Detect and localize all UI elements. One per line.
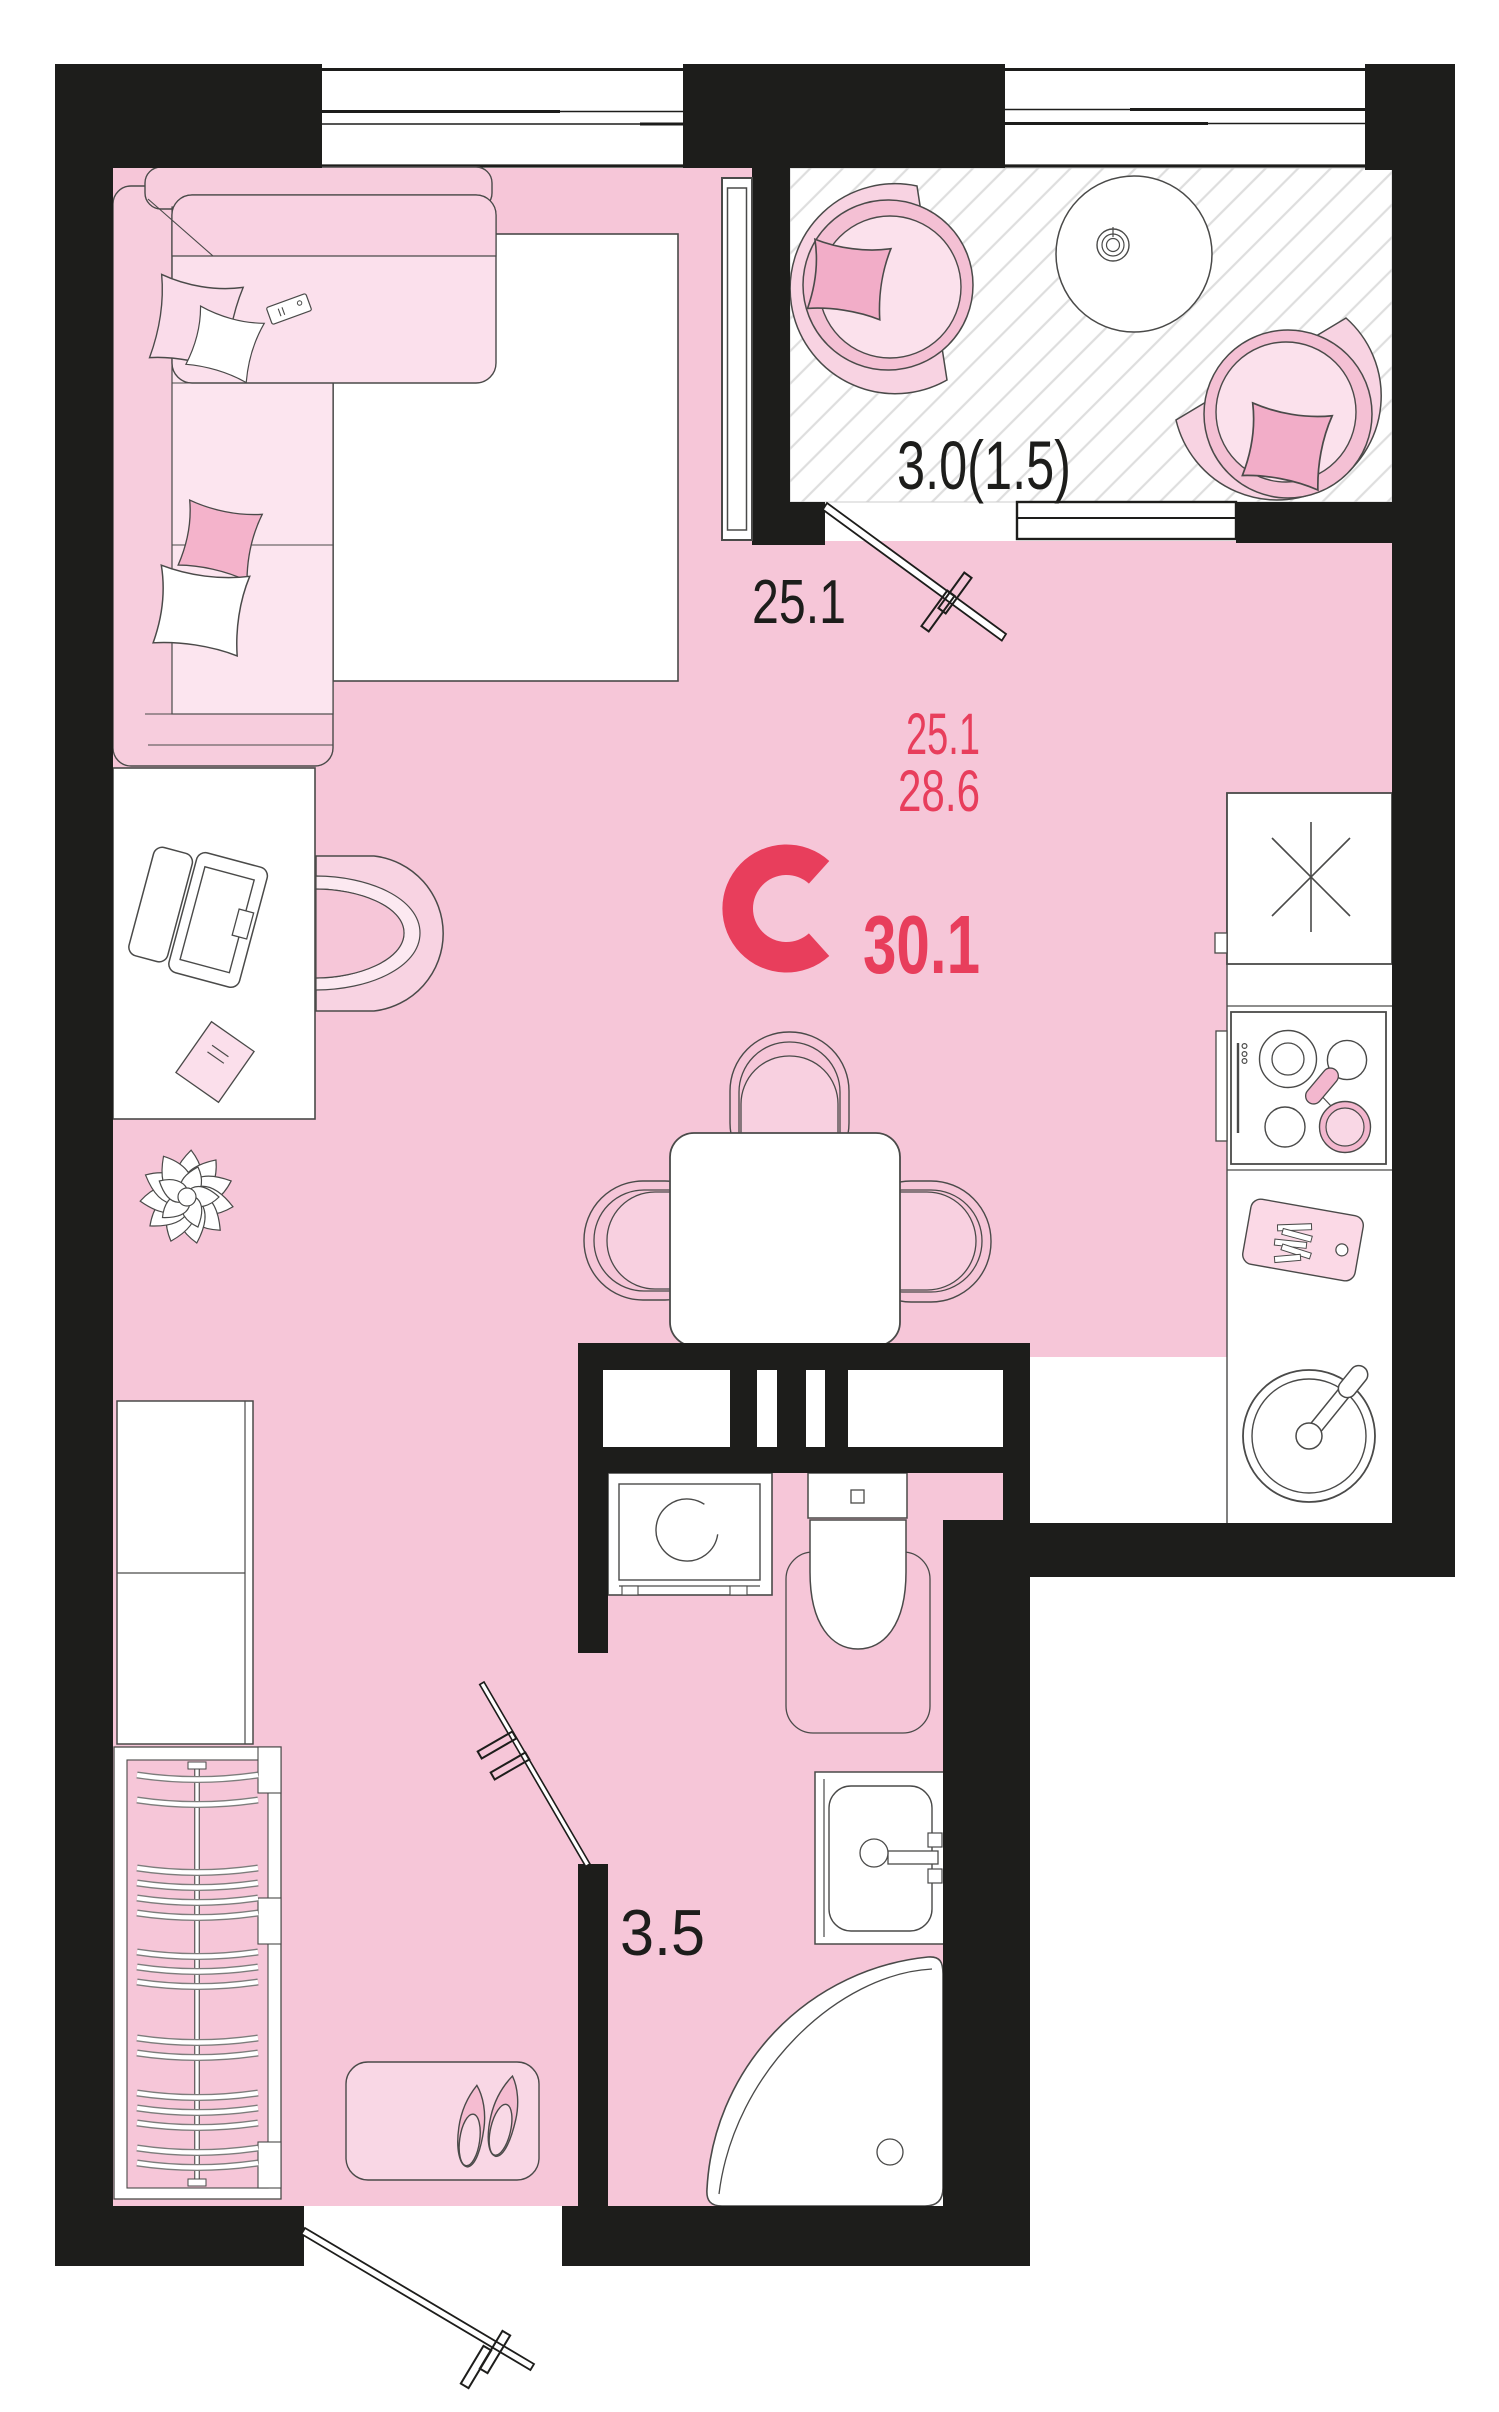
svg-text:3.0(1.5): 3.0(1.5)	[897, 427, 1071, 504]
svg-text:3.5: 3.5	[620, 1896, 705, 1969]
svg-text:30.1: 30.1	[863, 898, 980, 991]
svg-text:25.1: 25.1	[752, 568, 846, 637]
svg-text:28.6: 28.6	[898, 759, 980, 824]
svg-text:25.1: 25.1	[906, 702, 980, 767]
